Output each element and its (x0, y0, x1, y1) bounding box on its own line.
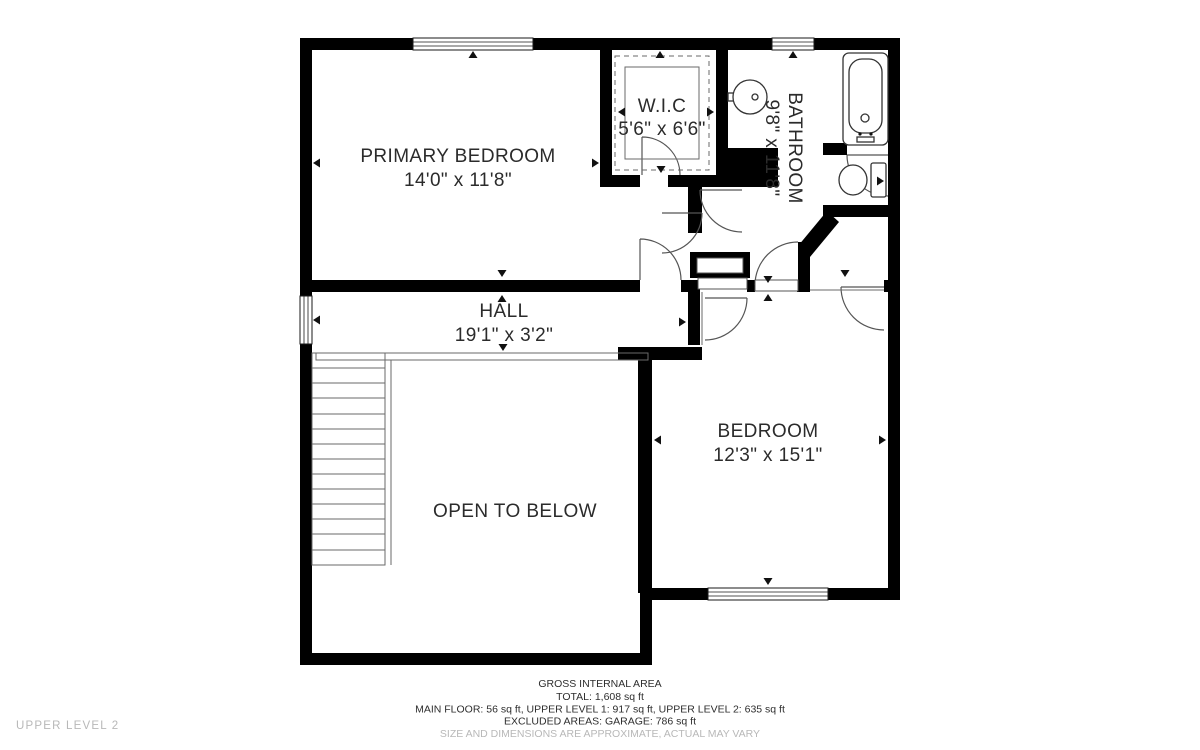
stairs-treads (312, 368, 385, 550)
wall-toilet-nook-bottom (823, 205, 888, 217)
floor-plan-canvas: PRIMARY BEDROOM 14'0" x 11'8" W.I.C 5'6"… (0, 0, 1200, 750)
bathroom-label-group: BATHROOM 9'8" x 11'8" (761, 92, 805, 204)
bathroom-label: BATHROOM (784, 92, 805, 204)
wall-wic-bottom-left (600, 175, 640, 187)
footer-excluded: EXCLUDED AREAS: GARAGE: 786 sq ft (504, 716, 696, 728)
wall-right (888, 38, 900, 600)
wall-top-right (814, 38, 900, 50)
stairs (312, 353, 648, 565)
hall-dims: 19'1" x 3'2" (455, 325, 553, 346)
floor-plan-page: PRIMARY BEDROOM 14'0" x 11'8" W.I.C 5'6"… (0, 0, 1200, 750)
footer-disclaimer: SIZE AND DIMENSIONS ARE APPROXIMATE, ACT… (440, 728, 760, 740)
wall-toilet-nook-top (823, 143, 847, 155)
wall-seg-d (884, 280, 900, 292)
wall-bedroom-left (638, 353, 652, 593)
bathroom-threshold (755, 280, 798, 291)
wall-left-upper (300, 38, 312, 296)
bathroom-dims: 9'8" x 11'8" (761, 99, 782, 196)
wall-connector (640, 588, 652, 665)
linen-closet-door-panel (698, 278, 747, 289)
bedroom-dims: 12'3" x 15'1" (713, 445, 822, 466)
door-bathroom (755, 242, 798, 285)
door-primary-bedroom (640, 239, 681, 280)
wall-wic-right (716, 50, 728, 175)
door-vestibule-a (700, 190, 742, 232)
door-hall-end (705, 298, 747, 340)
wall-seg-b (747, 280, 755, 292)
footer-total: TOTAL: 1,608 sq ft (556, 691, 644, 703)
wall-top-mid (533, 38, 772, 50)
wall-primary-right (600, 50, 612, 175)
footer-title: GROSS INTERNAL AREA (538, 678, 661, 690)
wic-dims: 5'6" x 6'6" (618, 119, 705, 140)
wall-top-left (300, 38, 413, 50)
window-primary-top (413, 38, 533, 50)
hall-label: HALL (479, 301, 528, 322)
bathtub-fixture (843, 53, 888, 145)
linen-closet-shelf (697, 258, 743, 273)
wall-hall-top (312, 280, 640, 292)
walls (300, 38, 900, 665)
wall-diagonal (798, 211, 839, 257)
wic-label: W.I.C (638, 96, 686, 117)
wall-bottom-left-section (300, 653, 652, 665)
wall-bedroom-bottom-left (646, 588, 708, 600)
wall-left-lower (300, 344, 312, 665)
footer-breakdown: MAIN FLOOR: 56 sq ft, UPPER LEVEL 1: 917… (415, 704, 785, 716)
window-bedroom-bottom (708, 588, 828, 600)
floor-level-tag: UPPER LEVEL 2 (16, 720, 119, 732)
open-to-below-label: OPEN TO BELOW (433, 501, 597, 522)
footer: GROSS INTERNAL AREA TOTAL: 1,608 sq ft M… (415, 678, 785, 740)
wall-hall-end (688, 282, 700, 345)
primary-bedroom-dims: 14'0" x 11'8" (404, 170, 512, 191)
window-bathroom-top (772, 38, 814, 50)
wall-bedroom-bottom-right (828, 588, 900, 600)
primary-bedroom-label: PRIMARY BEDROOM (360, 146, 555, 167)
door-bedroom-entry (841, 287, 884, 330)
stairwell-railing (316, 353, 648, 360)
window-hall-left (300, 296, 312, 344)
bedroom-label: BEDROOM (718, 421, 819, 442)
